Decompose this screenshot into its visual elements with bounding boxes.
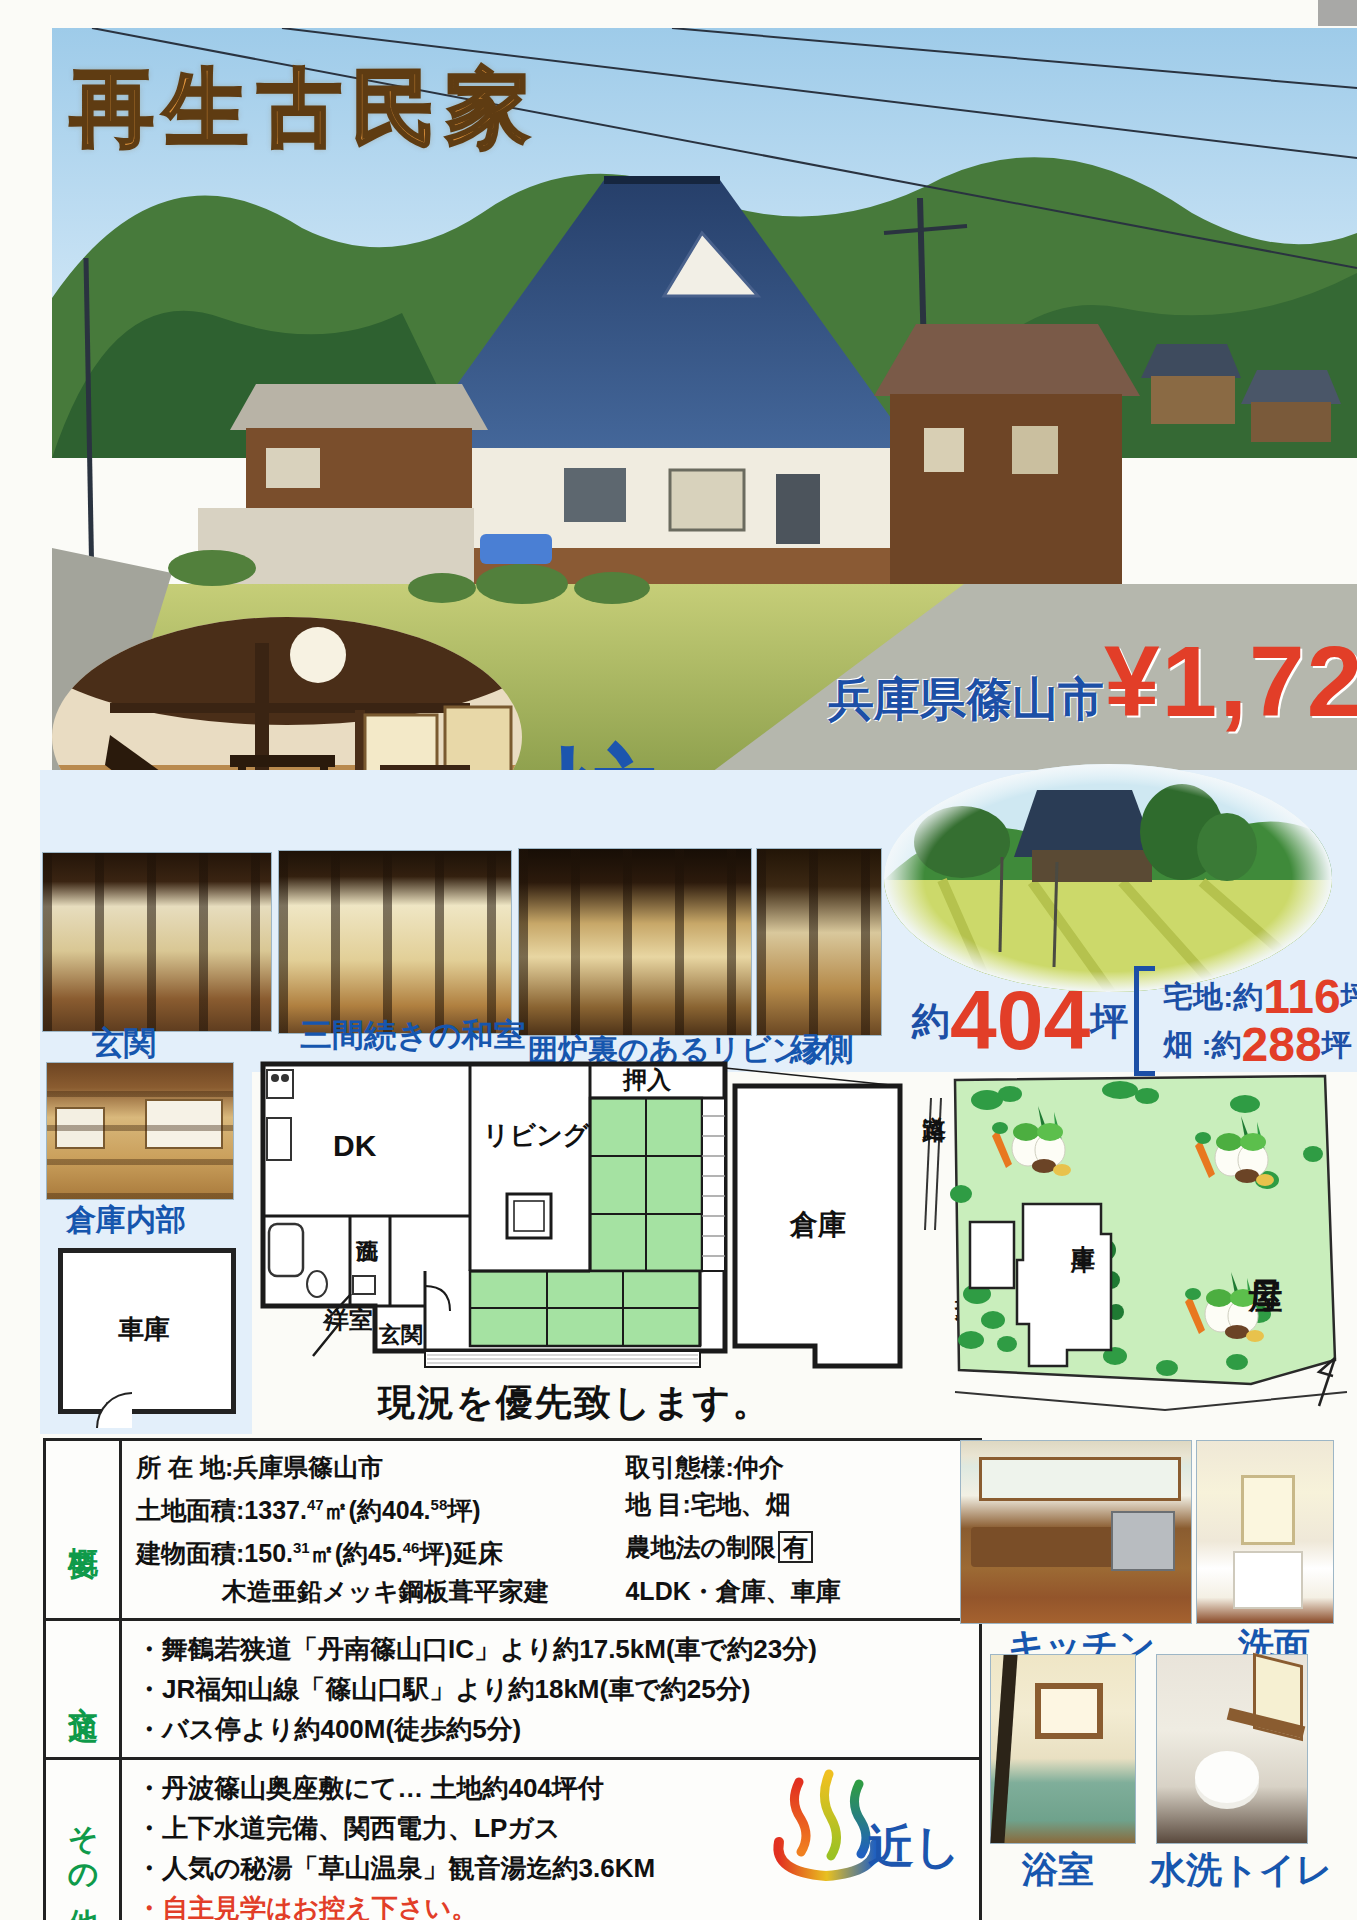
wood-beams-overlay — [279, 851, 511, 1033]
sitemap-main-house-label: 母屋 — [1243, 1252, 1289, 1256]
farm-unit: 坪 — [1322, 1030, 1352, 1060]
overview-body: 所 在 地:兵庫県篠山市 取引態様:仲介 土地面積:1337.47㎡(約404.… — [122, 1441, 979, 1618]
farm-label: 畑 :約 — [1163, 1030, 1241, 1060]
rice-field-graphic — [882, 762, 1334, 994]
site-map-graphic — [915, 1062, 1357, 1434]
sitemap-garage-box — [970, 1222, 1014, 1288]
caption-genkan: 玄関 — [92, 1022, 156, 1066]
access-line: ・JR福知山線「篠山口駅」より約18kM(車で約25分) — [136, 1669, 973, 1709]
photo-irori-living — [518, 848, 752, 1036]
other-header: その他 — [46, 1760, 122, 1920]
building-area-sup1: 31 — [293, 1539, 310, 1556]
residential-label: 宅地:約 — [1163, 982, 1263, 1012]
farmland-text: 農地法の制限 — [625, 1533, 776, 1561]
caption-washitsu: 三間続きの和室 — [300, 1014, 526, 1058]
other-body: ・丹波篠山奥座敷にて… 土地約404坪付 ・上下水道完備、関西電力、LPガス ・… — [122, 1760, 979, 1920]
spec-row-access: 交通 ・舞鶴若狭道「丹南篠山口IC」より約17.5kM(車で約23分) ・JR福… — [46, 1618, 979, 1757]
photo-washitsu — [278, 850, 512, 1034]
access-line: ・バス停より約400M(徒歩約5分) — [136, 1709, 973, 1749]
onsen-mark: 近し — [751, 1764, 961, 1884]
spec-row-overview: 概要 所 在 地:兵庫県篠山市 取引態様:仲介 土地面積:1337.47㎡(約4… — [46, 1441, 979, 1618]
tsubo-unit: 坪 — [1090, 996, 1128, 1047]
photo-warehouse-interior — [46, 1062, 234, 1200]
overview-land-area: 土地面積:1337.47㎡(約404.58坪) — [136, 1486, 621, 1529]
site-map — [915, 1062, 1357, 1434]
floorplan-warehouse-label: 倉庫 — [789, 1209, 846, 1240]
house-floor-plan: DK リビング 押入 洋室 玄関 倉庫 — [255, 1056, 905, 1371]
floorplan-note: 現況を優先致します。 — [378, 1378, 771, 1428]
washstand-cabinet — [1233, 1551, 1303, 1609]
door-frame — [990, 1655, 1017, 1843]
photo-kitchen — [960, 1440, 1192, 1624]
washstand-mirror — [1241, 1475, 1295, 1545]
land-area-text2: ㎡(約404. — [324, 1496, 431, 1524]
access-header: 交通 — [46, 1621, 122, 1757]
overview-structure: 木造亜鉛メッキ鋼板葺平家建 — [136, 1573, 621, 1610]
floorplan-living-label: リビング — [483, 1120, 591, 1150]
land-line-residential: 宅地:約 116 坪 — [1163, 973, 1357, 1021]
access-body: ・舞鶴若狭道「丹南篠山口IC」より約17.5kM(車で約23分) ・JR福知山線… — [122, 1621, 979, 1757]
floorplan-western-room-label: 洋室 — [324, 1306, 373, 1333]
bathroom-window — [1035, 1683, 1103, 1739]
overview-deal: 取引態様:仲介 — [625, 1449, 977, 1486]
overview-layout: 4LDK・倉庫、車庫 — [625, 1573, 977, 1610]
floorplan-entrance-label: 玄関 — [378, 1322, 423, 1347]
building-area-text2: ㎡(約45. — [310, 1540, 403, 1568]
spec-row-other: その他 ・丹波篠山奥座敷にて… 土地約404坪付 ・上下水道完備、関西電力、LP… — [46, 1757, 979, 1920]
access-line: ・舞鶴若狭道「丹南篠山口IC」より約17.5kM(車で約23分) — [136, 1629, 973, 1669]
bracket-graphic — [1134, 966, 1155, 1076]
kitchen-appliance — [1111, 1511, 1175, 1571]
location-label: 兵庫県篠山市 — [828, 676, 1104, 722]
land-area-text3: 坪) — [447, 1496, 480, 1524]
kitchen-window — [979, 1457, 1181, 1501]
land-breakdown: 宅地:約 116 坪 畑 :約 288 坪 — [1163, 973, 1357, 1069]
wood-beams-overlay — [43, 853, 271, 1031]
land-area-summary: 約 404 坪 宅地:約 116 坪 畑 :約 288 坪 — [912, 966, 1357, 1076]
caption-warehouse-interior: 倉庫内部 — [66, 1200, 186, 1241]
overview-category: 地 目:宅地、畑 — [625, 1486, 977, 1529]
page-title: 再生古民家 — [70, 52, 540, 166]
residential-unit: 坪 — [1341, 982, 1357, 1012]
other-warning-line: ・自主見学はお控え下さい。 — [136, 1888, 973, 1920]
scan-artifact — [1318, 0, 1357, 26]
sitemap-road-label: 道路 — [918, 1098, 950, 1102]
north-arrow — [1319, 1358, 1335, 1406]
photo-washstand — [1196, 1440, 1334, 1624]
photo-engawa — [756, 848, 882, 1036]
residential-value: 116 — [1263, 973, 1340, 1021]
floor-plan-graphic: DK リビング 押入 洋室 玄関 倉庫 — [255, 1056, 905, 1371]
right-barn — [874, 324, 1140, 590]
photo-bathroom — [990, 1654, 1136, 1844]
rice-field-photo — [882, 762, 1334, 994]
overview-farmland: 農地法の制限有 — [625, 1529, 977, 1572]
garage-plan-label: 車庫 — [118, 1312, 170, 1347]
toilet-bowl — [1195, 1751, 1259, 1803]
photo-genkan — [42, 852, 272, 1032]
blue-tarp — [480, 534, 552, 564]
sitemap-garage-label: 車庫 — [1067, 1226, 1099, 1230]
floorplan-washroom-label: 洗面 — [352, 1222, 382, 1226]
price-block: 兵庫県篠山市 ¥1,729 万円 — [828, 640, 1357, 722]
building-area-text3: 坪)延床 — [419, 1540, 502, 1568]
wood-beams-overlay — [757, 849, 881, 1035]
approx-label: 約 — [912, 996, 950, 1047]
overview-header: 概要 — [46, 1441, 122, 1618]
caption-toilet: 水洗トイレ — [1150, 1846, 1333, 1895]
floorplan-closet-top-label: 押入 — [622, 1066, 672, 1093]
total-tsubo: 404 — [950, 983, 1090, 1059]
overview-address: 所 在 地:兵庫県篠山市 — [136, 1449, 621, 1486]
neighbor-houses-graphic — [1131, 308, 1351, 448]
land-area-text: 土地面積:1337. — [136, 1496, 307, 1524]
photo-toilet — [1156, 1654, 1308, 1844]
spec-table: 概要 所 在 地:兵庫県篠山市 取引態様:仲介 土地面積:1337.47㎡(約4… — [43, 1438, 982, 1920]
overview-building-area: 建物面積:150.31㎡(約45.46坪)延床 — [136, 1529, 621, 1572]
wood-ceiling-overlay — [47, 1063, 233, 1199]
farmland-boxed-value: 有 — [778, 1531, 813, 1563]
price-value: ¥1,729 — [1104, 640, 1357, 722]
flyer-page: 再生古民家 兵庫県篠山市 ¥1,729 万円 — [0, 0, 1357, 1920]
onsen-near-label: 近し — [868, 1816, 961, 1878]
building-area-sup2: 46 — [403, 1539, 420, 1556]
building-area-text: 建物面積:150. — [136, 1540, 293, 1568]
wood-beams-overlay — [519, 849, 751, 1035]
caption-bathroom: 浴室 — [1022, 1846, 1094, 1895]
floorplan-dk-label: DK — [333, 1129, 377, 1162]
land-area-sup2: 58 — [431, 1496, 448, 1513]
land-area-sup1: 47 — [307, 1496, 324, 1513]
kitchen-counter — [971, 1527, 1121, 1567]
